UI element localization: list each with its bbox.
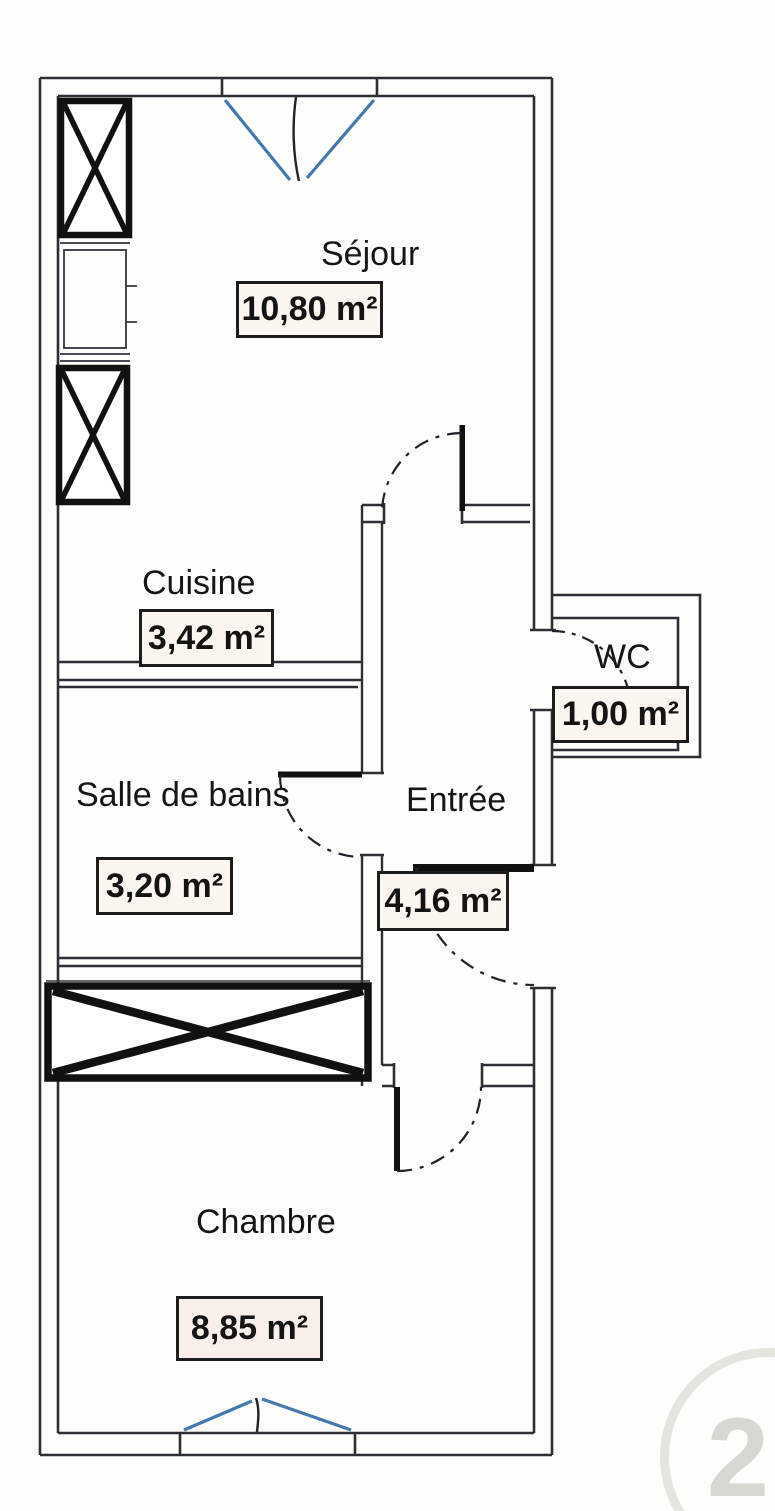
area-badge-entree: 4,16 m²	[377, 871, 509, 931]
kitchen-unit-icon	[60, 243, 137, 361]
room-label-chambre: Chambre	[196, 1205, 336, 1239]
area-badge-cuisine: 3,42 m²	[139, 609, 274, 667]
area-badge-sejour: 10,80 m²	[236, 281, 383, 338]
closet-icon-left-lower	[59, 368, 127, 502]
window-icon-sejour	[225, 97, 374, 181]
window-icon-chambre	[184, 1398, 351, 1432]
floor-plan-drawing	[0, 0, 775, 1511]
room-label-salle-de-bains: Salle de bains	[76, 778, 290, 812]
closet-icon-chambre	[46, 981, 370, 1078]
area-badge-salle-de-bains: 3,20 m²	[96, 857, 233, 915]
watermark-text: 21	[707, 1393, 775, 1511]
room-label-cuisine: Cuisine	[142, 566, 255, 600]
room-label-sejour: Séjour	[321, 237, 419, 271]
door-swing-icon-sejour-entree	[382, 425, 465, 513]
area-badge-chambre: 8,85 m²	[176, 1296, 323, 1361]
room-label-wc: WC	[594, 640, 651, 674]
closet-icon-left-upper	[61, 101, 129, 235]
door-swing-icon-sdb	[278, 772, 362, 858]
floor-plan-page: Séjour Cuisine Salle de bains Entrée WC …	[0, 0, 775, 1511]
door-swing-icon-chambre	[394, 1087, 481, 1171]
area-badge-wc: 1,00 m²	[552, 686, 689, 743]
room-label-entree: Entrée	[406, 783, 506, 817]
